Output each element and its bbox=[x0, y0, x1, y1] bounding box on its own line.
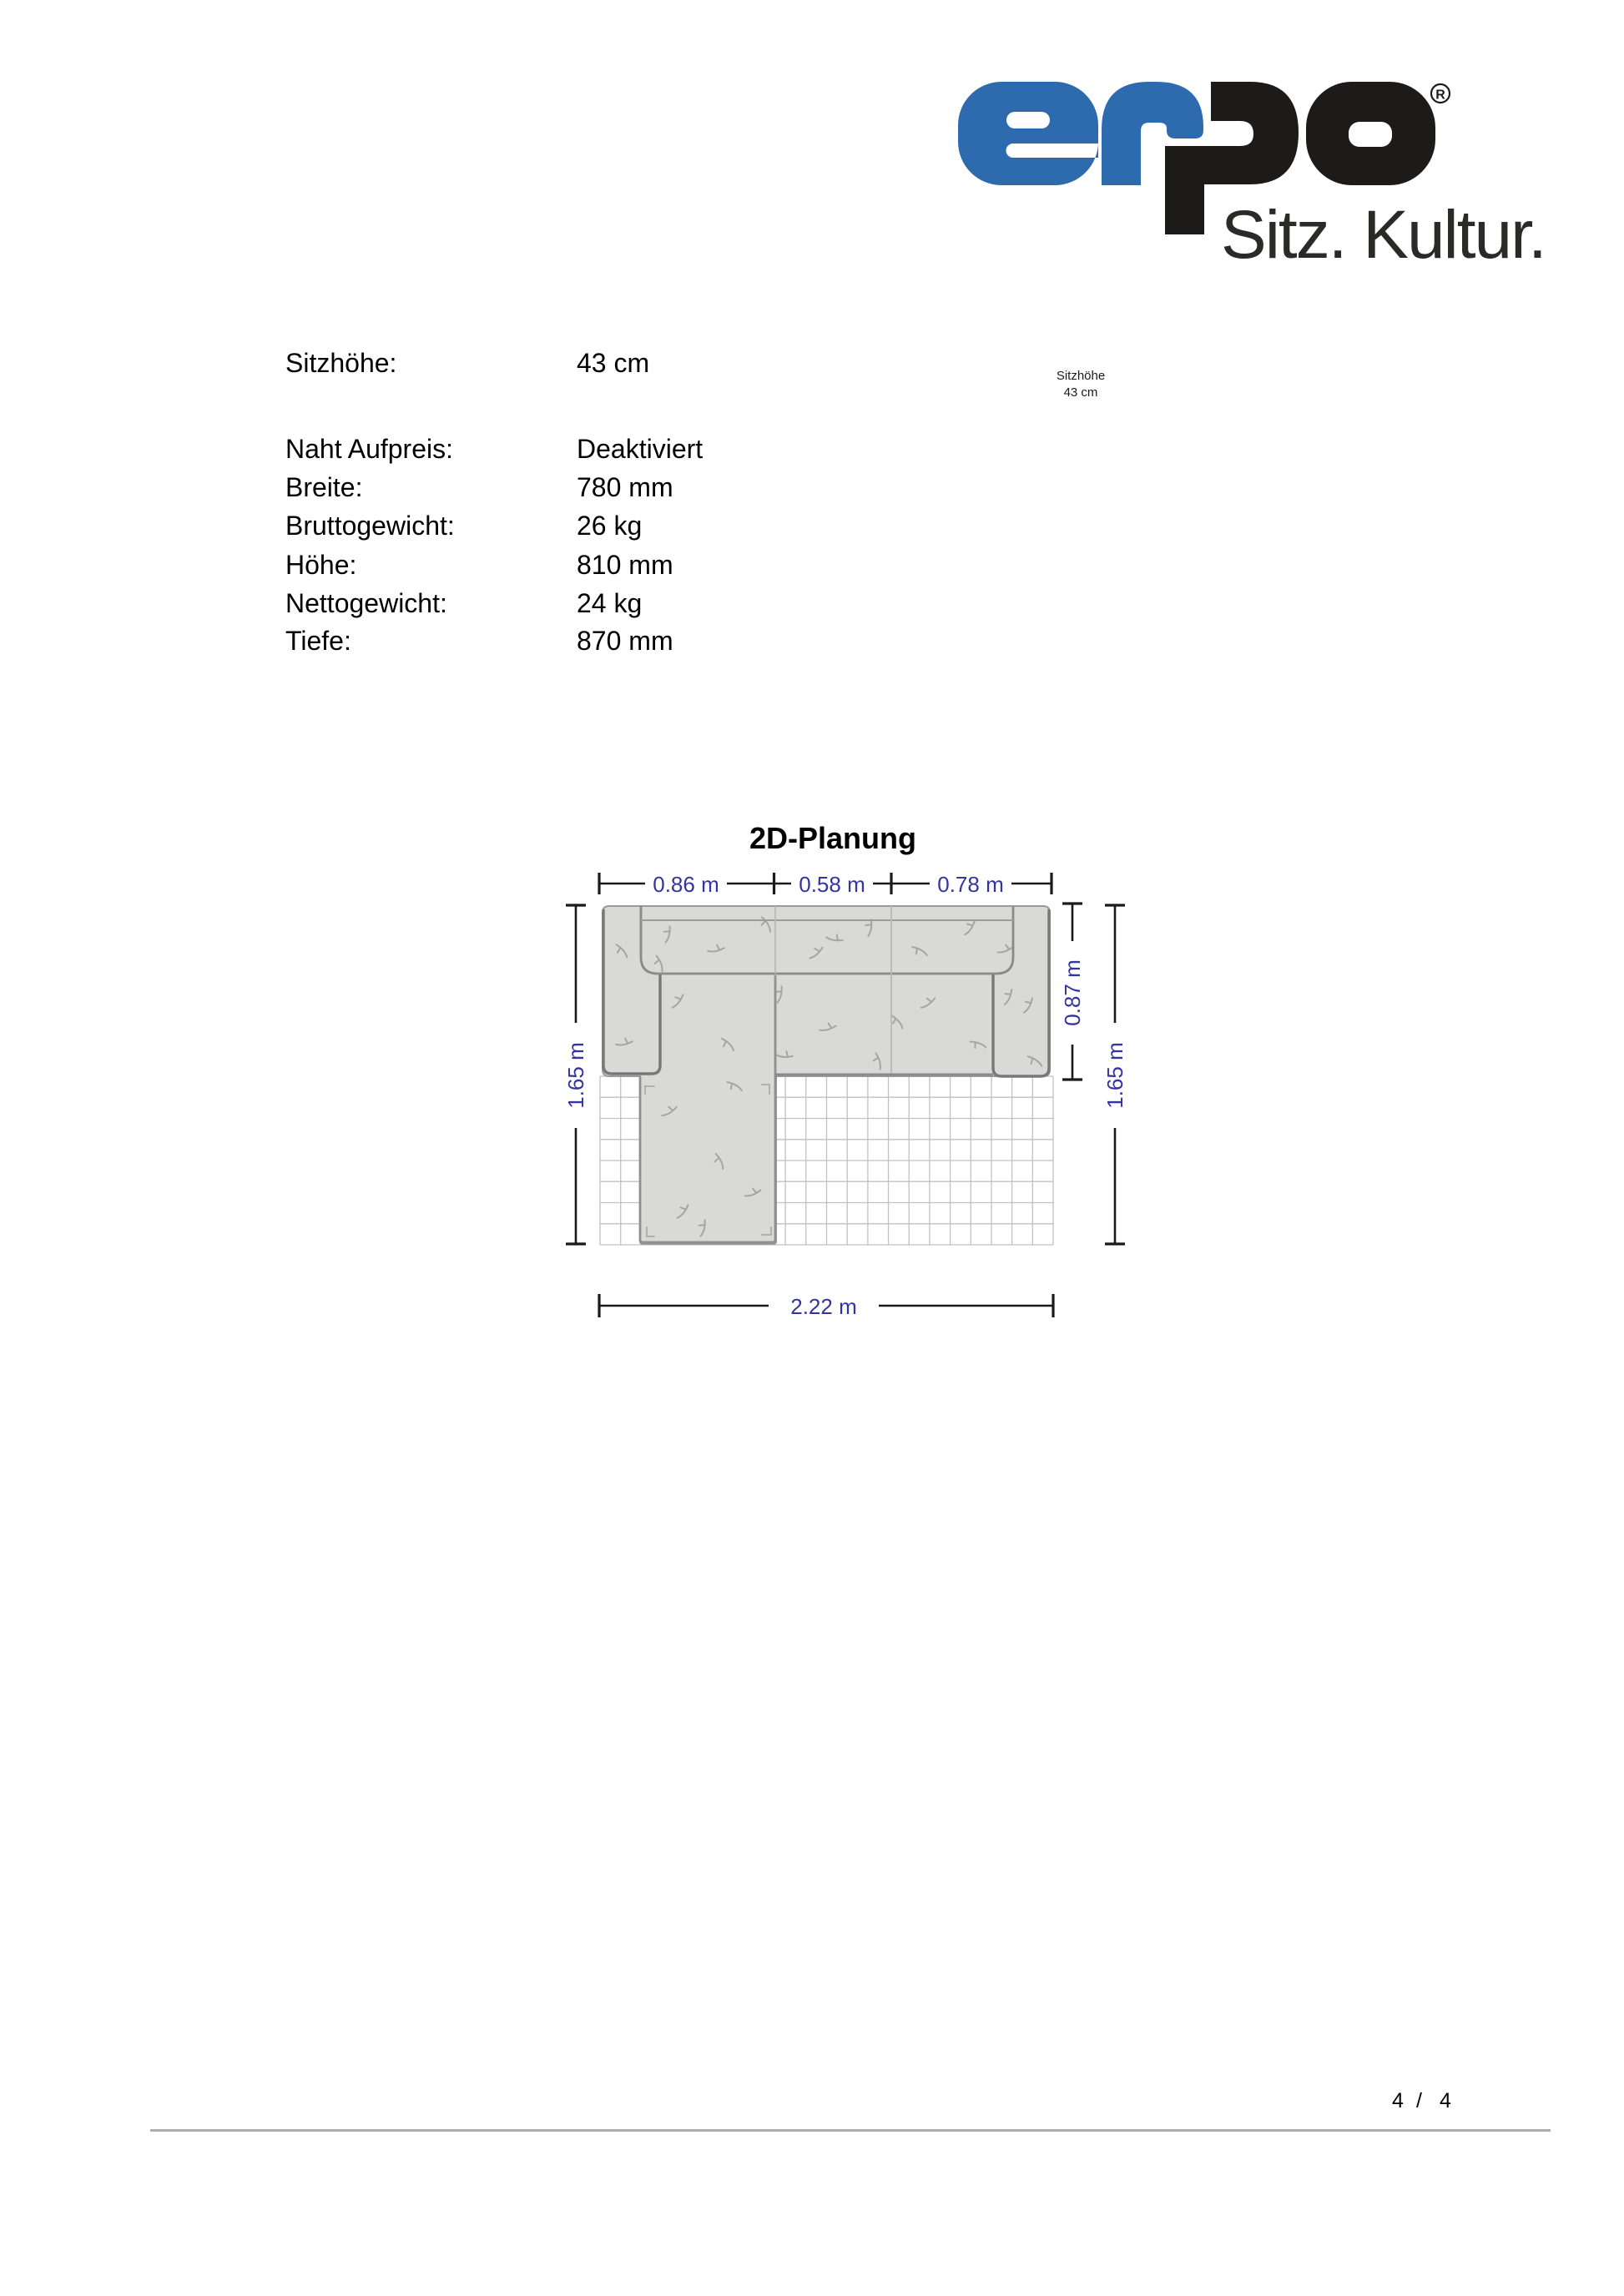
svg-text:1.65 m: 1.65 m bbox=[563, 1042, 588, 1109]
svg-text:R: R bbox=[1435, 88, 1445, 103]
svg-text:0.87 m: 0.87 m bbox=[1060, 959, 1085, 1026]
svg-text:2.22 m: 2.22 m bbox=[790, 1294, 857, 1319]
svg-text:0.58 m: 0.58 m bbox=[799, 872, 865, 897]
svg-text:1.65 m: 1.65 m bbox=[1102, 1042, 1127, 1109]
svg-text:0.86 m: 0.86 m bbox=[653, 872, 719, 897]
svg-text:0.78 m: 0.78 m bbox=[937, 872, 1004, 897]
